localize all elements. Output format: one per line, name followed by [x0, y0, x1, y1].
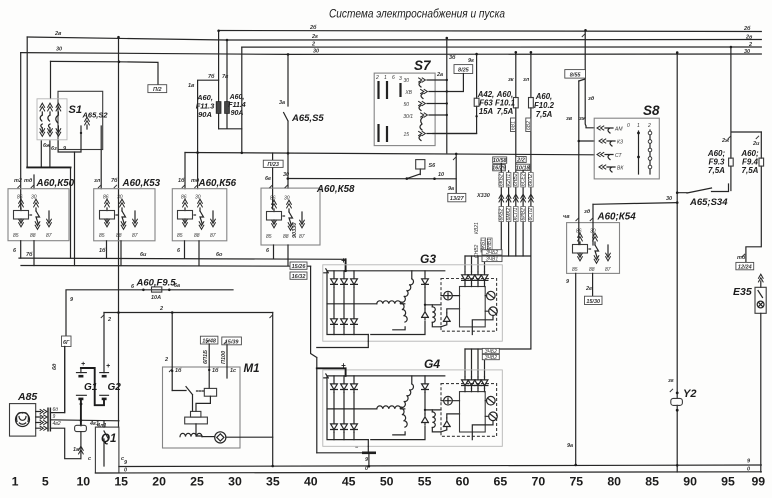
svg-text:6НВ2: 6НВ2 — [513, 173, 519, 186]
svg-text:СТ: СТ — [615, 153, 622, 159]
svg-text:зж: зж — [579, 116, 587, 122]
svg-text:50: 50 — [403, 102, 409, 108]
svg-text:6и: 6и — [140, 252, 147, 258]
svg-text:1б: 1б — [178, 177, 185, 184]
svg-text:7б: 7б — [26, 251, 33, 258]
svg-text:4в2: 4в2 — [53, 421, 61, 427]
svg-text:90330: 90330 — [292, 223, 298, 238]
svg-text:7,5А: 7,5А — [708, 166, 725, 175]
svg-text:А65,S2: А65,S2 — [82, 111, 109, 120]
svg-text:6В2: 6В2 — [526, 121, 532, 130]
svg-text:2е: 2е — [585, 286, 592, 292]
svg-text:А60,К50: А60,К50 — [36, 178, 75, 189]
svg-text:3б: 3б — [449, 54, 456, 61]
svg-text:30: 30 — [56, 47, 62, 53]
svg-text:8/55: 8/55 — [570, 72, 582, 78]
svg-text:ВК: ВК — [617, 166, 624, 172]
svg-text:т2: т2 — [14, 178, 22, 184]
svg-text:6КБ2: 6КБ2 — [499, 209, 505, 221]
svg-text:1г: 1г — [73, 447, 79, 453]
svg-text:10: 10 — [76, 475, 90, 489]
svg-text:3а: 3а — [279, 100, 285, 106]
svg-text:6о: 6о — [216, 252, 223, 258]
svg-text:G3: G3 — [420, 252, 436, 266]
svg-text:6: 6 — [392, 75, 395, 81]
svg-text:G1: G1 — [84, 382, 98, 393]
svg-text:6з: 6з — [51, 146, 57, 152]
svg-text:2ж: 2ж — [721, 138, 730, 144]
svg-text:90: 90 — [683, 475, 697, 489]
svg-text:6Г: 6Г — [63, 340, 70, 346]
svg-text:95: 95 — [721, 475, 735, 489]
svg-text:0: 0 — [365, 466, 368, 472]
svg-text:16/29: 16/29 — [492, 166, 507, 172]
svg-text:А65;S34: А65;S34 — [689, 197, 728, 208]
svg-text:10А: 10А — [151, 295, 161, 301]
svg-text:6ж: 6ж — [43, 143, 51, 149]
svg-text:1: 1 — [384, 75, 387, 81]
svg-text:А60,F9.5: А60,F9.5 — [135, 278, 176, 289]
svg-text:Y2: Y2 — [683, 388, 696, 400]
svg-text:2: 2 — [164, 357, 168, 363]
svg-text:40: 40 — [304, 475, 318, 489]
svg-text:2: 2 — [159, 306, 163, 312]
svg-text:6В1: 6В1 — [511, 121, 517, 130]
svg-text:А85: А85 — [17, 391, 37, 403]
svg-text:35: 35 — [266, 475, 280, 489]
svg-text:+: + — [81, 361, 85, 368]
svg-text:2/2: 2/2 — [516, 158, 525, 164]
svg-text:7в: 7в — [222, 74, 229, 80]
svg-text:85: 85 — [645, 475, 659, 489]
svg-text:9: 9 — [53, 414, 56, 420]
svg-text:тд: тд — [24, 178, 33, 184]
svg-text:30: 30 — [403, 78, 409, 84]
svg-text:8/25: 8/25 — [458, 68, 470, 74]
svg-text:А60,К56: А60,К56 — [198, 178, 237, 189]
svg-text:зл: зл — [94, 178, 101, 184]
svg-text:1б: 1б — [212, 367, 219, 374]
svg-text:3: 3 — [399, 76, 402, 82]
svg-text:6КБ2: 6КБ2 — [499, 174, 505, 186]
svg-text:П100: П100 — [221, 351, 227, 364]
svg-text:ЗЧБ2: ЗЧБ2 — [486, 250, 499, 256]
svg-text:13/27: 13/27 — [450, 196, 465, 202]
svg-text:зд: зд — [588, 96, 595, 102]
svg-text:зл: зл — [523, 77, 530, 83]
svg-text:80: 80 — [607, 475, 621, 489]
svg-text:2: 2 — [107, 317, 111, 323]
svg-text:30: 30 — [283, 172, 289, 178]
svg-text:ЗЧВ2: ЗЧВ2 — [485, 355, 498, 361]
svg-text:30/1: 30/1 — [403, 114, 413, 120]
svg-text:15/26: 15/26 — [292, 264, 307, 270]
svg-text:30: 30 — [313, 49, 319, 55]
svg-text:6П1Б: 6П1Б — [203, 350, 209, 364]
svg-text:12/24: 12/24 — [738, 264, 752, 270]
svg-text:90А: 90А — [198, 110, 212, 119]
svg-text:0: 0 — [627, 123, 630, 129]
svg-text:30: 30 — [666, 196, 672, 202]
svg-text:2: 2 — [647, 123, 651, 129]
svg-text:S7: S7 — [414, 58, 432, 73]
svg-text:+: + — [106, 363, 110, 370]
svg-text:ЗНВ1: ЗНВ1 — [487, 238, 493, 251]
svg-text:7,5А: 7,5А — [497, 107, 514, 116]
svg-text:6СЕ2: 6СЕ2 — [520, 173, 526, 186]
svg-text:ЗКБ1: ЗКБ1 — [481, 239, 487, 251]
svg-text:6КЛ2: 6КЛ2 — [528, 174, 534, 186]
svg-text:F11.4: F11.4 — [228, 102, 245, 109]
svg-text:15: 15 — [403, 132, 409, 138]
svg-text:7б: 7б — [208, 73, 215, 80]
svg-text:2в: 2в — [54, 31, 62, 37]
svg-text:ХВ: ХВ — [404, 90, 412, 96]
svg-text:Система электроснабжения и пус: Система электроснабжения и пуска — [329, 9, 505, 21]
svg-text:5: 5 — [42, 475, 49, 489]
svg-text:1б: 1б — [99, 247, 106, 254]
svg-text:6МК2: 6МК2 — [506, 208, 512, 221]
svg-text:1с: 1с — [230, 368, 236, 374]
svg-text:А60;К54: А60;К54 — [597, 212, 637, 223]
svg-text:6д: 6д — [52, 363, 58, 370]
svg-text:1б: 1б — [175, 367, 182, 374]
svg-text:АМ: АМ — [614, 127, 623, 133]
svg-text:А60,: А60, — [535, 92, 552, 101]
svg-text:9г: 9г — [468, 58, 474, 64]
svg-text:7,5А: 7,5А — [742, 166, 759, 175]
svg-text:10/58: 10/58 — [493, 158, 508, 164]
svg-text:75: 75 — [569, 475, 583, 489]
svg-text:7б: 7б — [111, 177, 118, 184]
svg-text:тб: тб — [737, 254, 746, 261]
svg-text:А65,S5: А65,S5 — [291, 113, 324, 124]
svg-text:зв: зв — [566, 116, 573, 122]
svg-text:55: 55 — [418, 475, 432, 489]
svg-text:20: 20 — [152, 475, 166, 489]
svg-text:зд: зд — [584, 209, 591, 215]
svg-text:1в: 1в — [188, 83, 195, 89]
svg-text:9а: 9а — [567, 443, 573, 449]
svg-text:10: 10 — [438, 172, 444, 178]
svg-text:П/2: П/2 — [153, 87, 162, 93]
svg-text:2: 2 — [311, 42, 315, 48]
svg-text:0: 0 — [124, 468, 127, 474]
svg-text:G4: G4 — [424, 357, 440, 371]
svg-text:Х330: Х330 — [476, 193, 490, 199]
svg-text:2: 2 — [748, 42, 752, 48]
svg-text:2и: 2и — [752, 141, 760, 147]
svg-text:15А: 15А — [479, 107, 494, 116]
svg-text:9а: 9а — [448, 186, 454, 192]
svg-text:G2: G2 — [108, 382, 122, 393]
svg-text:2г: 2г — [311, 34, 318, 40]
svg-text:6е: 6е — [265, 176, 271, 182]
svg-text:99: 99 — [751, 475, 765, 489]
svg-text:30: 30 — [228, 475, 242, 489]
svg-text:F10.2: F10.2 — [534, 101, 555, 110]
svg-text:Е35: Е35 — [733, 286, 752, 298]
svg-text:S8: S8 — [643, 103, 660, 118]
svg-text:S6: S6 — [429, 163, 437, 169]
svg-text:70: 70 — [532, 475, 546, 489]
svg-text:16/32: 16/32 — [292, 274, 306, 280]
svg-text:с: с — [88, 456, 91, 462]
svg-text:А60,К58: А60,К58 — [316, 184, 355, 195]
svg-text:КЗ: КЗ — [617, 140, 623, 146]
svg-text:0: 0 — [747, 467, 750, 473]
svg-text:КСП1: КСП1 — [513, 207, 519, 220]
svg-text:П/23: П/23 — [267, 162, 279, 168]
svg-text:7,5А: 7,5А — [536, 110, 553, 119]
svg-text:4л1: 4л1 — [96, 423, 107, 429]
svg-text:2б: 2б — [309, 24, 317, 31]
svg-text:25: 25 — [190, 475, 204, 489]
svg-text:15: 15 — [114, 475, 128, 489]
svg-text:А60,К53: А60,К53 — [122, 178, 161, 189]
svg-text:1: 1 — [12, 475, 19, 489]
svg-text:45: 45 — [342, 475, 356, 489]
svg-text:15/30: 15/30 — [586, 299, 600, 305]
svg-text:КВ21: КВ21 — [474, 222, 480, 234]
svg-text:6СП2: 6СП2 — [528, 207, 534, 220]
svg-text:50: 50 — [380, 475, 394, 489]
svg-text:ЗЧВ1: ЗЧВ1 — [486, 257, 499, 263]
svg-text:1: 1 — [637, 123, 640, 129]
svg-text:65: 65 — [494, 475, 508, 489]
svg-text:чв: чв — [563, 214, 570, 220]
svg-text:2в: 2в — [745, 35, 753, 41]
svg-text:2: 2 — [375, 75, 379, 81]
svg-text:К2П1: К2П1 — [506, 174, 512, 186]
svg-text:2б: 2б — [743, 25, 751, 32]
svg-text:зг: зг — [668, 378, 674, 384]
svg-text:6ИВ2: 6ИВ2 — [520, 208, 526, 221]
svg-text:М1: М1 — [244, 363, 260, 375]
svg-text:30: 30 — [744, 49, 750, 55]
svg-text:60: 60 — [456, 475, 470, 489]
svg-text:S1: S1 — [69, 104, 82, 116]
svg-text:2а: 2а — [436, 72, 443, 78]
svg-text:6а: 6а — [174, 283, 180, 289]
